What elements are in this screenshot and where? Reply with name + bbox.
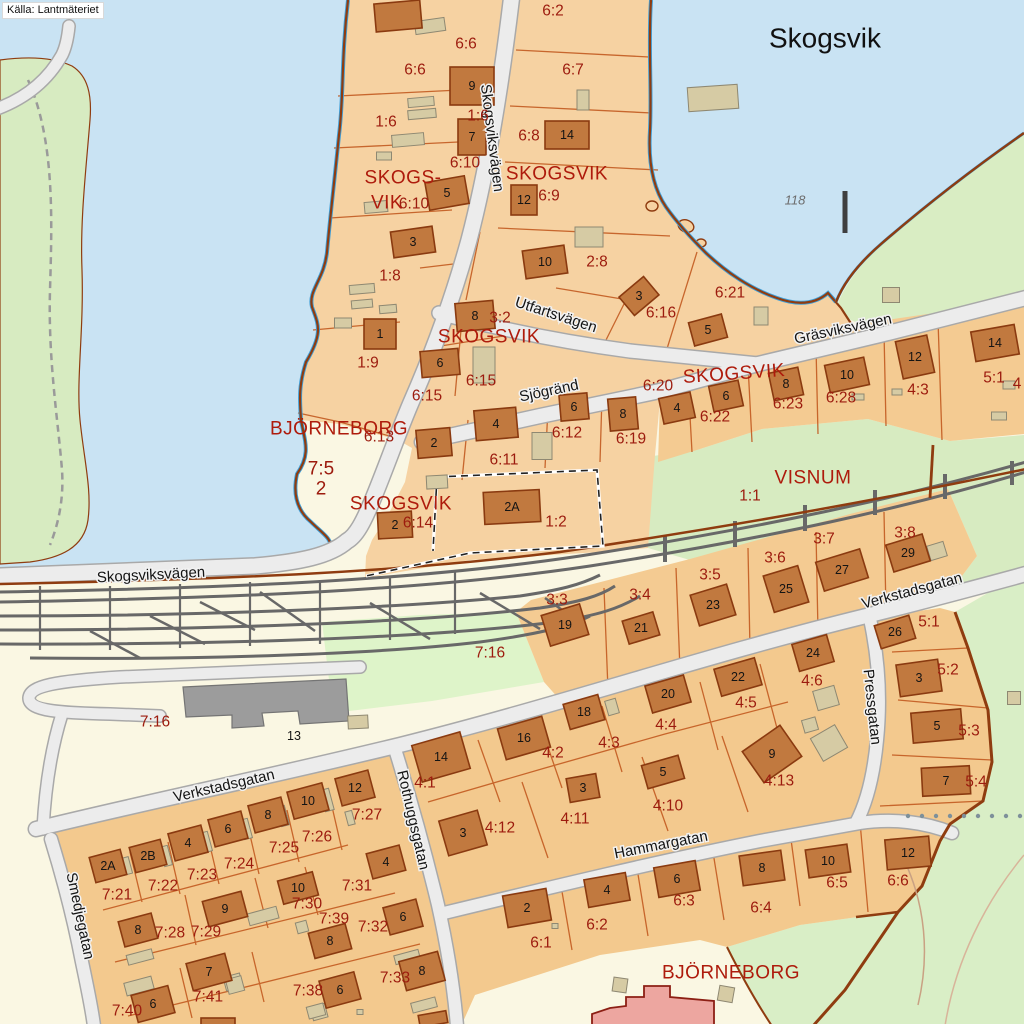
parcel-label: 7:23: [187, 867, 217, 884]
building-number: 5: [660, 765, 667, 779]
outbuilding: [992, 412, 1007, 420]
parcel-label: 6:11: [489, 452, 518, 469]
parcel-label: 5:1: [918, 614, 940, 631]
parcel-label: 6:12: [552, 425, 582, 442]
parcel-label: 6:10: [399, 196, 430, 213]
building: 10: [522, 245, 567, 279]
outbuilding: [577, 90, 589, 110]
building-number: 8: [327, 934, 334, 948]
parcel-label: 6:10: [450, 155, 481, 172]
building-number: 9: [222, 902, 229, 916]
parcel-label: 5:3: [958, 723, 980, 740]
parcel-label: 7:40: [112, 1003, 143, 1020]
building: [201, 1018, 235, 1024]
parcel-label: 7:16: [475, 645, 505, 662]
building-number: 14: [560, 128, 574, 142]
parcel-label: 4:4: [655, 717, 677, 734]
building: 4: [659, 392, 696, 424]
building: 4: [474, 407, 518, 441]
building-number: 3: [410, 235, 417, 249]
building-number: 1: [377, 327, 384, 341]
building-number: 14: [988, 336, 1002, 350]
parcel-label: 7:28: [155, 925, 185, 942]
parcel-label: 7:32: [358, 919, 388, 936]
parcel-label: 5:1: [983, 370, 1005, 387]
parcel-label: 1:8: [379, 268, 401, 285]
parcel-label: 6:1: [530, 935, 552, 952]
building-number: 10: [840, 368, 854, 382]
building: 8: [608, 397, 639, 431]
outbuilding: [892, 389, 902, 395]
map-viewport[interactable]: 914751231035186246846810121422A292725232…: [0, 0, 1024, 1024]
building: 12: [885, 836, 931, 870]
map-canvas[interactable]: 914751231035186246846810121422A292725232…: [0, 0, 1024, 1024]
parcel-label: 3:2: [489, 310, 511, 327]
building-number: 8: [472, 309, 479, 323]
place-label: SKOGS-: [365, 168, 442, 189]
depth-marker-label: 118: [785, 193, 806, 208]
building-number: 24: [806, 646, 820, 660]
building: 6: [559, 393, 589, 421]
building: 14: [545, 121, 589, 149]
building-number: 23: [706, 598, 720, 612]
building-number: 2A: [504, 500, 520, 514]
place-label: SKOGSVIK: [350, 494, 452, 515]
building-number: 22: [731, 670, 745, 684]
parcel-label: 4:6: [801, 673, 823, 690]
outbuilding: [379, 304, 397, 313]
building-number: 8: [135, 923, 142, 937]
building-number: 6: [674, 872, 681, 886]
outbuilding: [883, 288, 900, 303]
building-number: 4: [383, 855, 390, 869]
parcel-label: 7:25: [269, 840, 299, 857]
outbuilding: [392, 133, 425, 148]
building: 3: [896, 659, 942, 697]
building-number: 5: [705, 323, 712, 337]
building-number: 9: [769, 747, 776, 761]
outbuilding: [552, 924, 558, 929]
parcel-label: 1:6: [467, 108, 489, 125]
outbuilding: [295, 920, 308, 933]
parcel-label: 6:6: [455, 36, 477, 53]
building-number: 2A: [100, 859, 116, 873]
building-number: 4: [493, 417, 500, 431]
parcel-label: 6:15: [412, 388, 442, 405]
building: 1: [364, 319, 396, 349]
parcel-label: 7:24: [224, 856, 255, 873]
place-label: BJÖRNEBORG: [270, 419, 408, 440]
building-number: 7: [469, 130, 476, 144]
building: 10: [805, 844, 850, 878]
building-number: 7: [943, 774, 950, 788]
building: 13: [287, 729, 301, 743]
building-number: 5: [444, 186, 451, 200]
islet: [646, 201, 658, 211]
parcel-label: 2: [316, 479, 327, 500]
parcel-label: 5:2: [937, 662, 959, 679]
building-number: 2: [392, 518, 399, 532]
outbuilding: [408, 96, 435, 107]
building: 3: [566, 774, 600, 803]
building-number: 8: [419, 964, 426, 978]
building-number: 6: [150, 997, 157, 1011]
dotted-boundary-dot: [990, 814, 994, 818]
outbuilding: [687, 84, 739, 111]
parcel-label: 7:38: [293, 983, 323, 1000]
building-number: 2: [431, 436, 438, 450]
building-number: 19: [558, 618, 572, 632]
building: 14: [971, 324, 1020, 361]
building-number: 6: [400, 910, 407, 924]
building: 7: [921, 766, 970, 796]
dotted-boundary-dot: [976, 814, 980, 818]
parcel-label: 1:6: [375, 114, 397, 131]
building: 2: [416, 428, 452, 459]
parcel-label: 6:2: [542, 3, 564, 20]
parcel-label: 7:33: [380, 970, 410, 987]
outbuilding: [426, 475, 448, 489]
building-number: 12: [901, 846, 915, 860]
parcel-label: 3:6: [764, 550, 786, 567]
parcel-label: 4:1: [414, 775, 436, 792]
building-number: 18: [577, 705, 591, 719]
building-number: 12: [517, 193, 531, 207]
parcel-label: 6:8: [518, 128, 540, 145]
parcel-label: 7:27: [352, 807, 382, 824]
outbuilding: [348, 715, 369, 729]
building-number: 3: [916, 671, 923, 685]
building-number: 8: [759, 861, 766, 875]
parcel-label: 6:6: [404, 62, 426, 79]
building-number: 4: [185, 836, 192, 850]
building: [374, 0, 422, 32]
building: 12: [511, 185, 537, 215]
building-number: 3: [636, 289, 643, 303]
outbuilding: [335, 318, 352, 328]
parcel-label: 6:20: [643, 378, 674, 395]
parcel-label: 7:22: [148, 878, 178, 895]
building-number: 3: [460, 826, 467, 840]
outbuilding: [575, 227, 603, 247]
parcel-label: 3:7: [813, 531, 835, 548]
parcel-label: 7:26: [302, 829, 332, 846]
building-number: 8: [265, 808, 272, 822]
parcel-label: 2:8: [586, 254, 608, 271]
building-number: 9: [469, 79, 476, 93]
building-number: 25: [779, 582, 793, 596]
parcel-label: 7:5: [308, 459, 334, 480]
parcel-label: 6:9: [538, 188, 560, 205]
parcel-label: 6:23: [773, 396, 803, 413]
parcel-label: 3:5: [699, 567, 721, 584]
building-number: 5: [934, 719, 941, 733]
building-number: 2B: [140, 849, 155, 863]
parcel-label: 1:1: [739, 488, 761, 505]
attribution-label: Källa: Lantmäteriet: [2, 2, 104, 19]
dotted-boundary-dot: [948, 814, 952, 818]
parcel-label: 6:3: [673, 893, 695, 910]
building-number: 10: [301, 794, 315, 808]
outbuilding: [408, 108, 437, 119]
dotted-boundary-dot: [920, 814, 924, 818]
parcel-label: 4:2: [542, 745, 564, 762]
building-number: 13: [287, 729, 301, 743]
parcel-label: 4: [1013, 376, 1022, 393]
parcel-label: 4:11: [560, 811, 589, 828]
dotted-boundary-dot: [1004, 814, 1008, 818]
place-label: BJÖRNEBORG: [662, 963, 800, 984]
building-number: 2: [524, 901, 531, 915]
building-number: 21: [634, 621, 648, 635]
outbuilding: [351, 299, 373, 309]
parcel-label: 5:4: [965, 774, 987, 791]
parcel-label: 6:6: [887, 873, 909, 890]
parcel-label: 6:5: [826, 875, 848, 892]
dotted-boundary-dot: [934, 814, 938, 818]
building-number: 12: [348, 781, 362, 795]
parcel-label: 4:3: [907, 382, 929, 399]
parcel-label: 1:2: [545, 514, 567, 531]
building-number: 16: [517, 731, 531, 745]
parcel-label: 6:19: [616, 431, 646, 448]
parcel-label: 3:8: [894, 525, 916, 542]
building: 12: [895, 335, 934, 379]
outbuilding: [532, 433, 552, 460]
dotted-boundary-dot: [1018, 814, 1022, 818]
building-number: 6: [571, 400, 578, 414]
area-title-label: Skogsvik: [769, 23, 882, 54]
building-number: 6: [337, 983, 344, 997]
building-footprint: [201, 1018, 235, 1024]
building-number: 29: [901, 546, 915, 560]
parcel-label: 7:41: [193, 989, 223, 1006]
parcel-label: 4:3: [598, 735, 620, 752]
place-label: SKOGSVIK: [506, 164, 608, 185]
building-number: 26: [888, 625, 902, 639]
dotted-boundary-dot: [906, 814, 910, 818]
building: 2A: [483, 490, 541, 525]
outbuilding: [754, 307, 768, 325]
parcel-label: 6:4: [750, 900, 772, 917]
building: 3: [390, 226, 435, 258]
building-number: 10: [538, 255, 552, 269]
building: 2: [503, 888, 552, 927]
building-footprint: [374, 0, 422, 32]
parcel-label: 3:4: [629, 587, 651, 604]
building-number: 4: [604, 883, 611, 897]
parcel-label: 4:5: [735, 695, 757, 712]
parcel-label: 3:3: [546, 592, 568, 609]
building-number: 10: [821, 854, 835, 868]
building-number: 12: [908, 350, 922, 364]
place-label: VIK: [371, 193, 403, 214]
building-number: 3: [580, 781, 587, 795]
parcel-label: 4:12: [485, 820, 515, 837]
building: 6: [420, 348, 460, 377]
parcel-label: 7:39: [319, 911, 349, 928]
building-number: 7: [206, 965, 213, 979]
parcel-label: 6:14: [403, 515, 434, 532]
building-number: 20: [661, 687, 675, 701]
dotted-boundary-dot: [962, 814, 966, 818]
parcel-label: 4:13: [764, 773, 794, 790]
parcel-label: 4:10: [653, 798, 684, 815]
building: 8: [739, 850, 785, 886]
parcel-label: 7:30: [292, 896, 323, 913]
parcel-label: 6:15: [466, 373, 496, 390]
parcel-label: 6:22: [700, 409, 730, 426]
parcel-label: 7:16: [140, 714, 170, 731]
building-number: 6: [225, 822, 232, 836]
parcel-label: 6:7: [562, 62, 584, 79]
building-number: 6: [437, 356, 444, 370]
building: 5: [911, 709, 963, 743]
outbuilding: [357, 1010, 363, 1015]
parcel-label: 7:31: [342, 878, 372, 895]
outbuilding: [717, 985, 734, 1002]
outbuilding: [1008, 692, 1021, 705]
outbuilding: [349, 283, 375, 294]
parcel-label: 6:21: [715, 285, 745, 302]
building-number: 14: [434, 750, 448, 764]
building-number: 8: [620, 407, 627, 421]
parcel-label: 6:28: [826, 390, 856, 407]
parcel-label: 6:16: [646, 305, 676, 322]
parcel-label: 7:21: [102, 887, 132, 904]
parcel-label: 6:2: [586, 917, 608, 934]
building-number: 4: [674, 401, 681, 415]
parcel-label: 7:29: [191, 924, 221, 941]
place-label: VISNUM: [775, 468, 852, 489]
building-number: 27: [835, 563, 849, 577]
parcel-label: 1:9: [357, 355, 379, 372]
place-label: SKOGSVIK: [438, 327, 540, 348]
outbuilding: [377, 152, 392, 160]
building-number: 10: [291, 881, 305, 895]
building-number: 6: [723, 389, 730, 403]
outbuilding: [612, 977, 628, 993]
